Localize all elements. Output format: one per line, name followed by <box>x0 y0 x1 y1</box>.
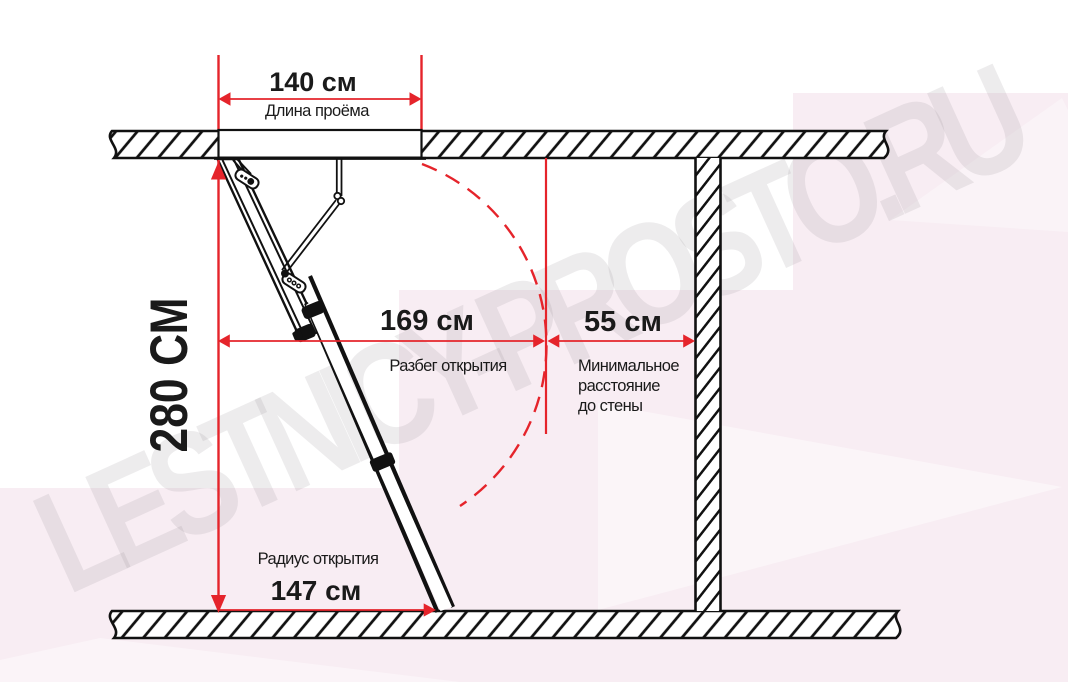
svg-text:147 см: 147 см <box>271 575 362 606</box>
svg-text:169 см: 169 см <box>380 305 474 337</box>
svg-text:Радиус открытия: Радиус открытия <box>258 550 379 568</box>
svg-text:Минимальное: Минимальное <box>578 357 679 375</box>
svg-text:140 см: 140 см <box>269 67 357 97</box>
svg-text:55 см: 55 см <box>584 306 662 338</box>
svg-text:расстояние: расстояние <box>578 377 660 395</box>
svg-text:280 СМ: 280 СМ <box>140 298 199 453</box>
svg-text:Разбег открытия: Разбег открытия <box>389 357 506 375</box>
svg-text:до стены: до стены <box>578 397 642 415</box>
svg-text:Длина проёма: Длина проёма <box>265 102 370 120</box>
